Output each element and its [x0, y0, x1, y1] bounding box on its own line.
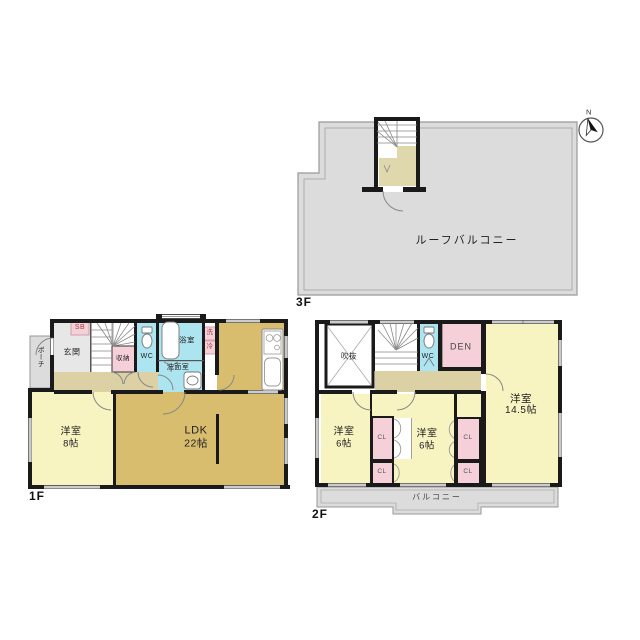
bedroom6-center-label: 洋室 6帖	[417, 429, 438, 452]
bedroom6-west-size: 6帖	[334, 438, 355, 449]
ldk-name: LDK	[184, 424, 208, 437]
toilet-icon-1f	[142, 327, 152, 348]
bedroom8-label: 洋室 8帖	[61, 427, 82, 450]
balcony-label: バルコニー	[412, 492, 462, 501]
bedroom6-center-name: 洋室	[417, 429, 438, 441]
bedroom6-west-entry	[372, 394, 394, 417]
entrance-label: 玄関	[64, 347, 81, 356]
ldk-size: 22帖	[184, 437, 208, 449]
bedroom8-name: 洋室	[61, 427, 82, 439]
storage-label: 収納	[116, 355, 130, 363]
bathtub-icon	[162, 322, 179, 359]
sink-icon	[184, 372, 201, 389]
closet-label-1: CL	[377, 434, 386, 442]
closet-label-3: CL	[463, 434, 472, 442]
void-label: 吹抜	[341, 353, 357, 362]
bedroom8-size: 8帖	[61, 438, 82, 449]
floor-3f	[298, 117, 603, 295]
wc-2f-label: WC	[422, 353, 435, 361]
bedroom6-center-entry	[457, 394, 481, 418]
roof-balcony-label: ルーフバルコニー	[415, 235, 518, 248]
wc-1f-label: WC	[141, 353, 154, 361]
kitchen-counter	[262, 329, 283, 390]
floor-1f	[28, 314, 290, 489]
compass-north-label: N	[586, 109, 592, 118]
floorplan-canvas: ルーフバルコニー 3F N ポーチ 玄関 SB 収納 WC 浴室 洗面室 洗 冷…	[0, 0, 640, 640]
bedroom145-label: 洋室 14.5帖	[505, 393, 537, 417]
bath-label: 浴室	[179, 337, 195, 346]
hallway-2f-area	[375, 371, 481, 392]
shoebox-label: SB	[75, 324, 85, 332]
washer-label: 洗	[207, 329, 214, 337]
bedroom145-size: 14.5帖	[505, 405, 537, 417]
bedroom6-west-label: 洋室 6帖	[334, 427, 355, 450]
floor-label-3f: 3F	[296, 295, 312, 309]
bedroom6-center-size: 6帖	[417, 440, 438, 451]
ldk-label: LDK 22帖	[184, 424, 208, 449]
roof-balcony-area	[298, 122, 577, 295]
floor-label-1f: 1F	[29, 489, 45, 503]
porch-label: ポーチ	[36, 347, 44, 368]
bedroom145-name: 洋室	[505, 393, 537, 405]
compass-icon	[579, 117, 603, 142]
stove-icon	[264, 331, 281, 354]
den-label: DEN	[450, 342, 472, 353]
fridge-label: 冷	[207, 343, 214, 351]
floorplan-drawing	[0, 0, 640, 640]
closet-label-4: CL	[463, 468, 472, 476]
closet-label-2: CL	[377, 468, 386, 476]
kitchen-sink-icon	[265, 358, 281, 386]
bedroom6-west-name: 洋室	[334, 427, 355, 439]
washroom-label: 洗面室	[167, 364, 190, 372]
floor-label-2f: 2F	[312, 507, 328, 521]
